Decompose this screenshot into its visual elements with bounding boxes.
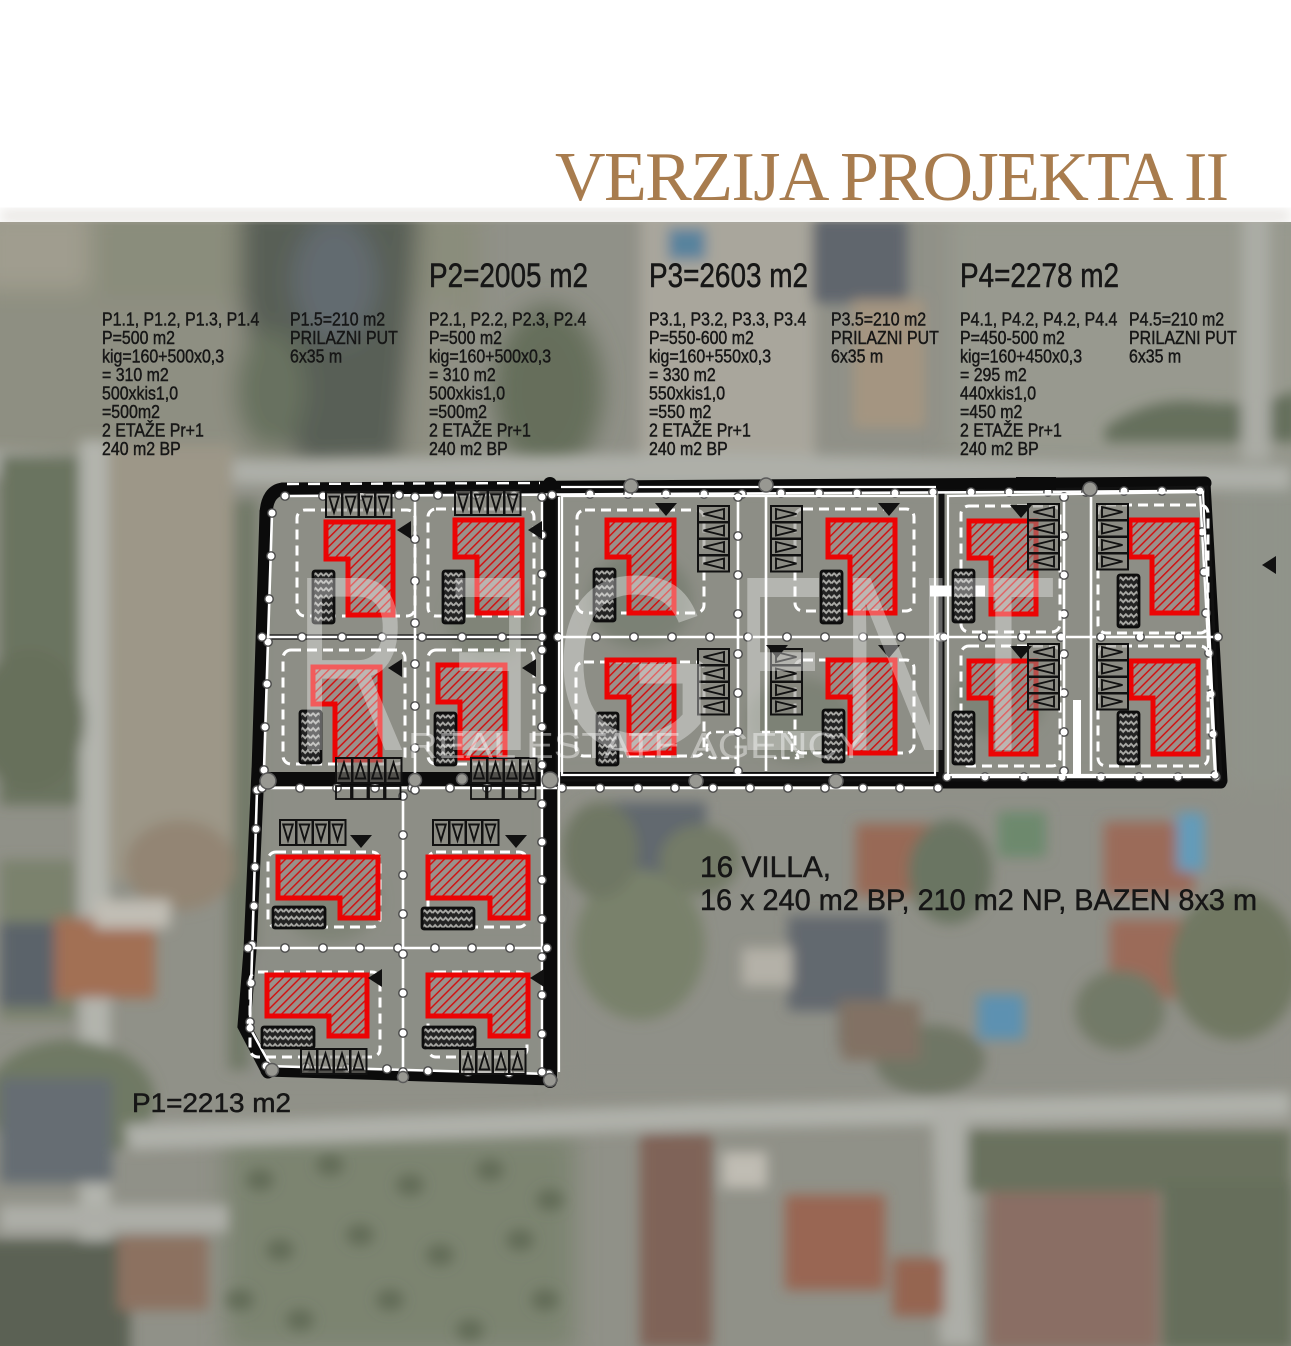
svg-text:6x35 m: 6x35 m [290,345,342,366]
svg-text:240 m2 BP: 240 m2 BP [960,438,1039,459]
svg-text:16 VILLA,: 16 VILLA, [700,851,831,884]
svg-text:240 m2 BP: 240 m2 BP [429,438,508,459]
svg-text:VERZIJA PROJEKTA II: VERZIJA PROJEKTA II [555,139,1229,216]
svg-text:P1=2213 m2: P1=2213 m2 [132,1088,291,1118]
svg-text:16 x 240 m2 BP, 210 m2 NP, BAZ: 16 x 240 m2 BP, 210 m2 NP, BAZEN 8x3 m [700,884,1257,917]
svg-text:T: T [950,524,1057,803]
svg-text:P2=2005 m2: P2=2005 m2 [429,257,588,295]
svg-text:P3=2603 m2: P3=2603 m2 [649,257,808,295]
svg-text:240 m2 BP: 240 m2 BP [102,438,181,459]
svg-text:240 m2 BP: 240 m2 BP [649,438,728,459]
svg-text:P4=2278 m2: P4=2278 m2 [960,257,1119,295]
svg-text:REAL ESTATE AGENCY: REAL ESTATE AGENCY [408,725,865,766]
svg-text:6x35 m: 6x35 m [1129,345,1181,366]
svg-text:6x35 m: 6x35 m [831,345,883,366]
svg-text:R: R [294,525,410,804]
